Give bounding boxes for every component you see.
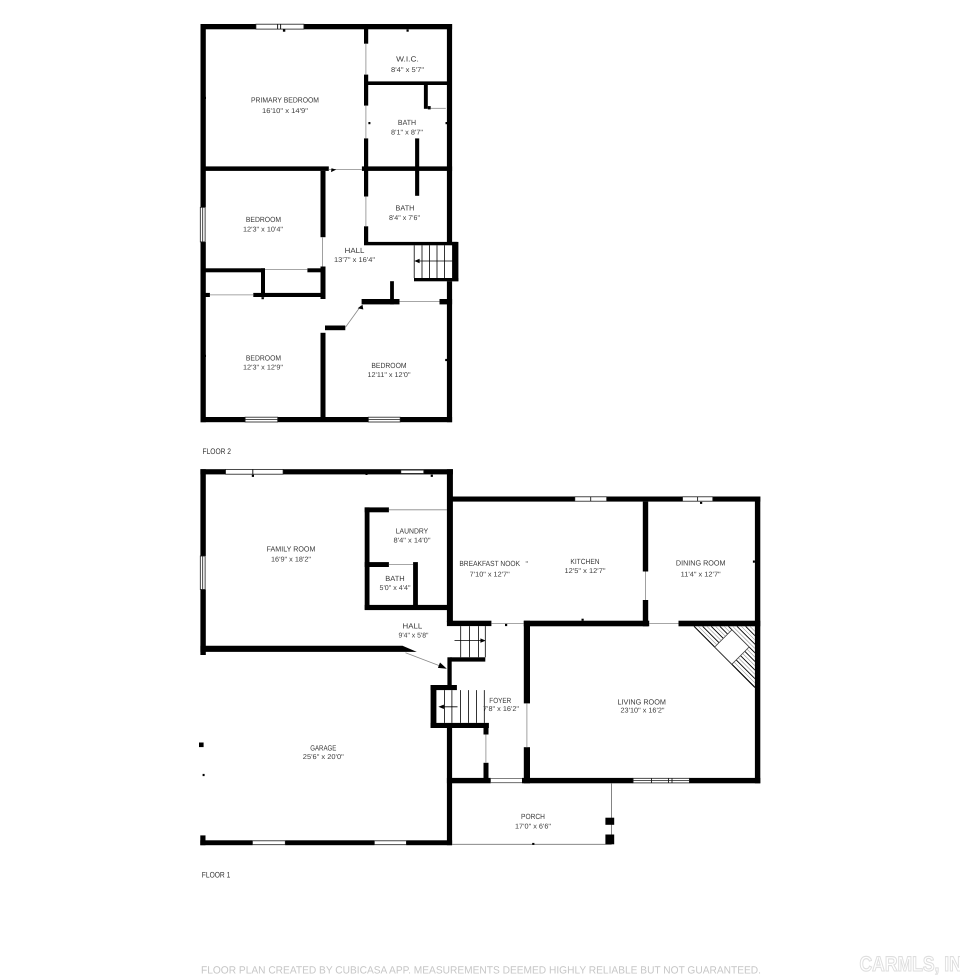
svg-text:12'11" x 12'0": 12'11" x 12'0" xyxy=(368,372,412,379)
svg-text:LIVING ROOM: LIVING ROOM xyxy=(618,698,666,707)
svg-text:W.I.C.: W.I.C. xyxy=(396,55,419,64)
svg-text:12'5" x 12'7": 12'5" x 12'7" xyxy=(565,568,607,575)
svg-text:8'1" x 8'7": 8'1" x 8'7" xyxy=(391,130,424,137)
svg-text:BREAKFAST NOOK: BREAKFAST NOOK xyxy=(459,559,520,568)
svg-text:12'3" x 10'4": 12'3" x 10'4" xyxy=(243,227,284,234)
svg-text:5'0" x 4'4": 5'0" x 4'4" xyxy=(380,585,412,592)
svg-text:KITCHEN: KITCHEN xyxy=(570,557,599,566)
svg-text:PORCH: PORCH xyxy=(521,812,545,821)
svg-text:FLOOR 1: FLOOR 1 xyxy=(202,871,231,880)
svg-text:FOYER: FOYER xyxy=(489,696,511,705)
svg-text:GARAGE: GARAGE xyxy=(310,744,336,753)
svg-text:11'4" x 12'7": 11'4" x 12'7" xyxy=(681,572,722,579)
svg-text:8'4" x 7'6": 8'4" x 7'6" xyxy=(389,215,421,222)
svg-text:BEDROOM: BEDROOM xyxy=(246,215,281,224)
svg-text:BEDROOM: BEDROOM xyxy=(246,354,281,363)
svg-text:CARMLS, INC: CARMLS, INC xyxy=(860,953,960,976)
svg-text:HALL: HALL xyxy=(403,622,423,631)
svg-text:16'10" x 14'9": 16'10" x 14'9" xyxy=(262,108,309,115)
svg-text:8'4" x 5'7": 8'4" x 5'7" xyxy=(391,67,425,74)
svg-text:7'8" x 16'2": 7'8" x 16'2" xyxy=(483,706,520,713)
svg-text:BATH: BATH xyxy=(396,204,415,213)
svg-text:17'0" x 6'6": 17'0" x 6'6" xyxy=(515,824,552,831)
svg-text:PRIMARY BEDROOM: PRIMARY BEDROOM xyxy=(251,96,319,105)
svg-text:25'6" x 20'0": 25'6" x 20'0" xyxy=(303,754,345,761)
svg-text:LAUNDRY: LAUNDRY xyxy=(396,527,429,536)
svg-text:FAMILY ROOM: FAMILY ROOM xyxy=(267,545,316,554)
svg-text:9'4" x 5'8": 9'4" x 5'8" xyxy=(399,633,430,640)
svg-text:12'3" x 12'9": 12'3" x 12'9" xyxy=(243,365,284,372)
svg-text:BATH: BATH xyxy=(385,574,404,583)
svg-text:FLOOR 2: FLOOR 2 xyxy=(203,447,232,456)
svg-text:7'10" x 12'7": 7'10" x 12'7" xyxy=(470,572,511,579)
svg-text:DINING ROOM: DINING ROOM xyxy=(676,558,726,567)
svg-text:BATH: BATH xyxy=(398,118,416,127)
svg-text:16'9" x 18'2": 16'9" x 18'2" xyxy=(271,557,312,564)
svg-text:23'10" x 16'2": 23'10" x 16'2" xyxy=(621,708,666,715)
svg-text:HALL: HALL xyxy=(345,246,365,255)
svg-text:FLOOR PLAN CREATED BY CUBICASA: FLOOR PLAN CREATED BY CUBICASA APP. MEAS… xyxy=(201,965,761,976)
svg-text:8'4" x 14'0": 8'4" x 14'0" xyxy=(394,538,432,545)
svg-text:BEDROOM: BEDROOM xyxy=(371,361,406,370)
svg-text:13'7" x 16'4": 13'7" x 16'4" xyxy=(334,257,376,264)
